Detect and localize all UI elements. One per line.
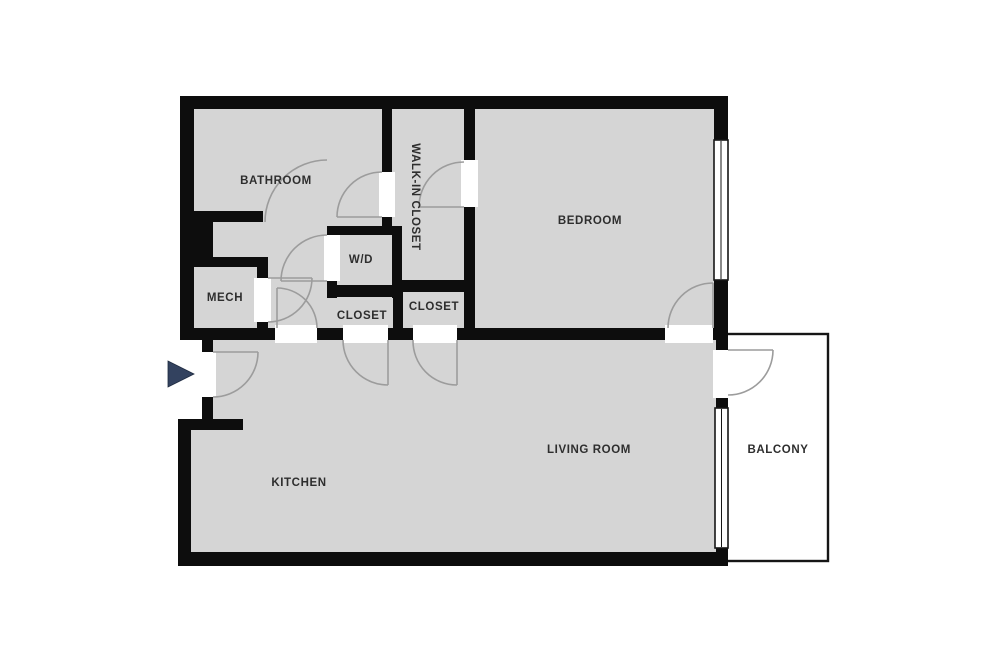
label-kitchen: KITCHEN	[271, 477, 326, 489]
label-wd: W/D	[349, 254, 373, 266]
label-balcony: BALCONY	[747, 444, 808, 456]
label-walk-in-closet: WALK-IN CLOSET	[409, 143, 421, 250]
living-room-window	[715, 408, 728, 548]
label-living-room: LIVING ROOM	[547, 444, 631, 456]
entry-arrow-icon	[168, 361, 194, 387]
label-bathroom: BATHROOM	[240, 175, 312, 187]
floor-kitchen	[185, 427, 718, 555]
floor-plan-canvas: BATHROOM WALK-IN CLOSET BEDROOM W/D MECH…	[0, 0, 1000, 666]
bedroom-window	[714, 140, 728, 280]
label-bedroom: BEDROOM	[558, 215, 622, 227]
floor-plan: BATHROOM WALK-IN CLOSET BEDROOM W/D MECH…	[0, 0, 1000, 666]
label-closet-b: CLOSET	[409, 301, 459, 313]
label-mech: MECH	[207, 292, 243, 304]
label-closet-a: CLOSET	[337, 310, 387, 322]
